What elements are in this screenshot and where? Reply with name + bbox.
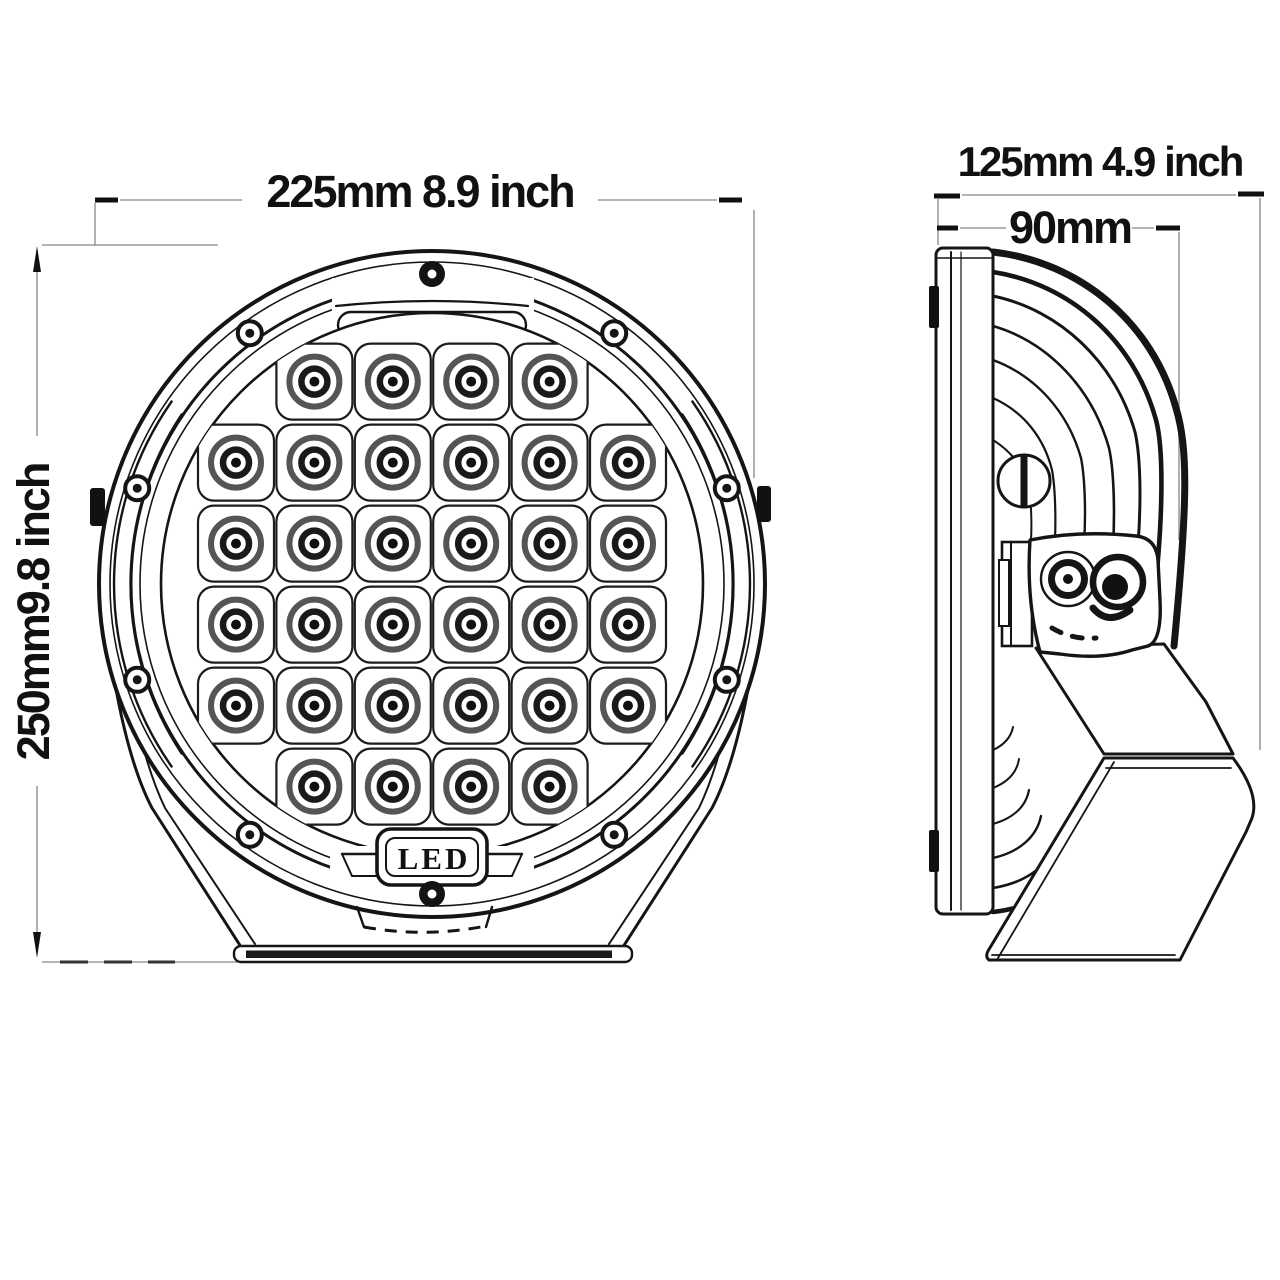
side-lens-block xyxy=(929,248,993,914)
side-knob-right xyxy=(1093,557,1143,607)
led-cell xyxy=(276,587,352,663)
bezel-screw xyxy=(602,321,626,345)
led-cell xyxy=(276,425,352,501)
bezel-screw xyxy=(125,476,149,500)
led-cell xyxy=(276,344,352,420)
led-cell xyxy=(433,587,509,663)
led-cell xyxy=(590,425,666,501)
side-knob-plate xyxy=(1029,534,1160,657)
side-left-tab-upper xyxy=(929,286,939,328)
side-view: 125mm 4.9 inch 90mm xyxy=(929,138,1264,960)
led-cell xyxy=(355,668,431,744)
led-cell xyxy=(198,587,274,663)
led-cell xyxy=(355,344,431,420)
front-height-label: 250mm9.8 inch xyxy=(8,464,59,761)
led-cell xyxy=(433,425,509,501)
led-cell xyxy=(433,344,509,420)
led-cell xyxy=(433,506,509,582)
led-cell xyxy=(433,749,509,825)
led-cell xyxy=(433,668,509,744)
led-cell xyxy=(590,587,666,663)
led-cell xyxy=(512,668,588,744)
front-left-tab xyxy=(90,488,105,526)
led-cell xyxy=(512,749,588,825)
bezel-screw xyxy=(419,881,445,907)
led-cell xyxy=(512,506,588,582)
side-left-tab-lower xyxy=(929,830,939,872)
led-cell xyxy=(276,749,352,825)
side-bracket-foot xyxy=(987,644,1254,960)
front-view: 225mm 8.9 inch 250mm9.8 inch xyxy=(8,166,771,962)
led-cell xyxy=(355,749,431,825)
diagram-canvas: 225mm 8.9 inch 250mm9.8 inch xyxy=(0,0,1280,1280)
side-housing-depth-label: 90mm xyxy=(1009,202,1131,253)
led-cell xyxy=(512,425,588,501)
led-badge: LED xyxy=(377,829,487,885)
bezel-screw xyxy=(715,668,739,692)
led-cell xyxy=(198,506,274,582)
bezel-screw xyxy=(602,823,626,847)
side-pivot-screw xyxy=(998,455,1050,507)
led-cell xyxy=(355,425,431,501)
led-cell xyxy=(512,344,588,420)
side-hinge-block xyxy=(999,542,1032,646)
bezel-screw xyxy=(125,668,149,692)
led-cell xyxy=(198,425,274,501)
led-cell xyxy=(198,668,274,744)
led-cell xyxy=(512,587,588,663)
led-cell xyxy=(355,587,431,663)
led-cell xyxy=(276,506,352,582)
led-cell xyxy=(276,668,352,744)
front-width-label: 225mm 8.9 inch xyxy=(266,166,573,217)
led-badge-label: LED xyxy=(398,841,471,876)
bezel-screw xyxy=(715,476,739,500)
led-cell xyxy=(590,668,666,744)
bezel-screw xyxy=(238,823,262,847)
side-overall-depth-label: 125mm 4.9 inch xyxy=(958,138,1243,185)
led-cell xyxy=(590,506,666,582)
bezel-screw xyxy=(419,261,445,287)
side-knob-left xyxy=(1041,552,1095,606)
bezel-screw xyxy=(238,321,262,345)
front-lens-ring xyxy=(161,313,703,855)
led-cell xyxy=(355,506,431,582)
front-right-tab xyxy=(757,486,771,522)
